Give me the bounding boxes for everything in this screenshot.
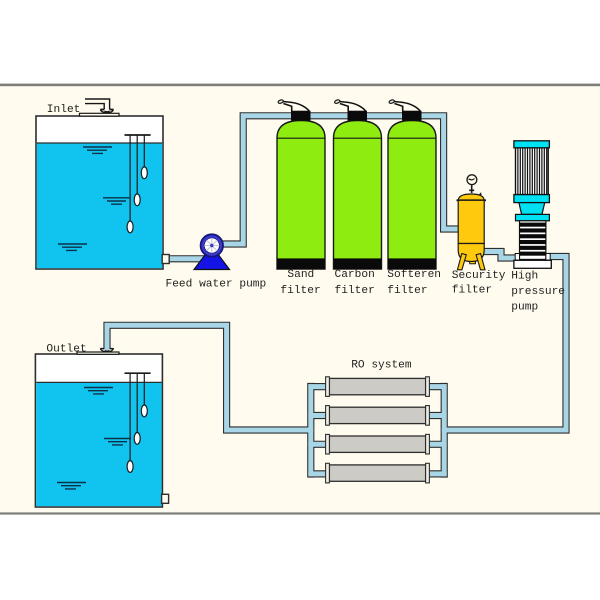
- svg-text:Inlet: Inlet: [47, 104, 81, 116]
- svg-text:filter: filter: [387, 285, 427, 297]
- svg-text:filter: filter: [335, 285, 375, 297]
- svg-text:pump: pump: [511, 301, 538, 313]
- svg-text:RO system: RO system: [351, 360, 412, 372]
- svg-text:Security: Security: [452, 270, 506, 282]
- svg-text:Sand: Sand: [287, 269, 314, 281]
- svg-text:filter: filter: [452, 285, 492, 297]
- svg-text:Outlet: Outlet: [46, 343, 86, 355]
- svg-text:High: High: [511, 271, 538, 283]
- svg-text:filter: filter: [280, 285, 320, 297]
- svg-text:pressure: pressure: [511, 286, 565, 298]
- svg-text:Feed water pump: Feed water pump: [166, 279, 267, 291]
- svg-text:Softeren: Softeren: [387, 269, 441, 281]
- svg-text:Carbon: Carbon: [335, 269, 375, 281]
